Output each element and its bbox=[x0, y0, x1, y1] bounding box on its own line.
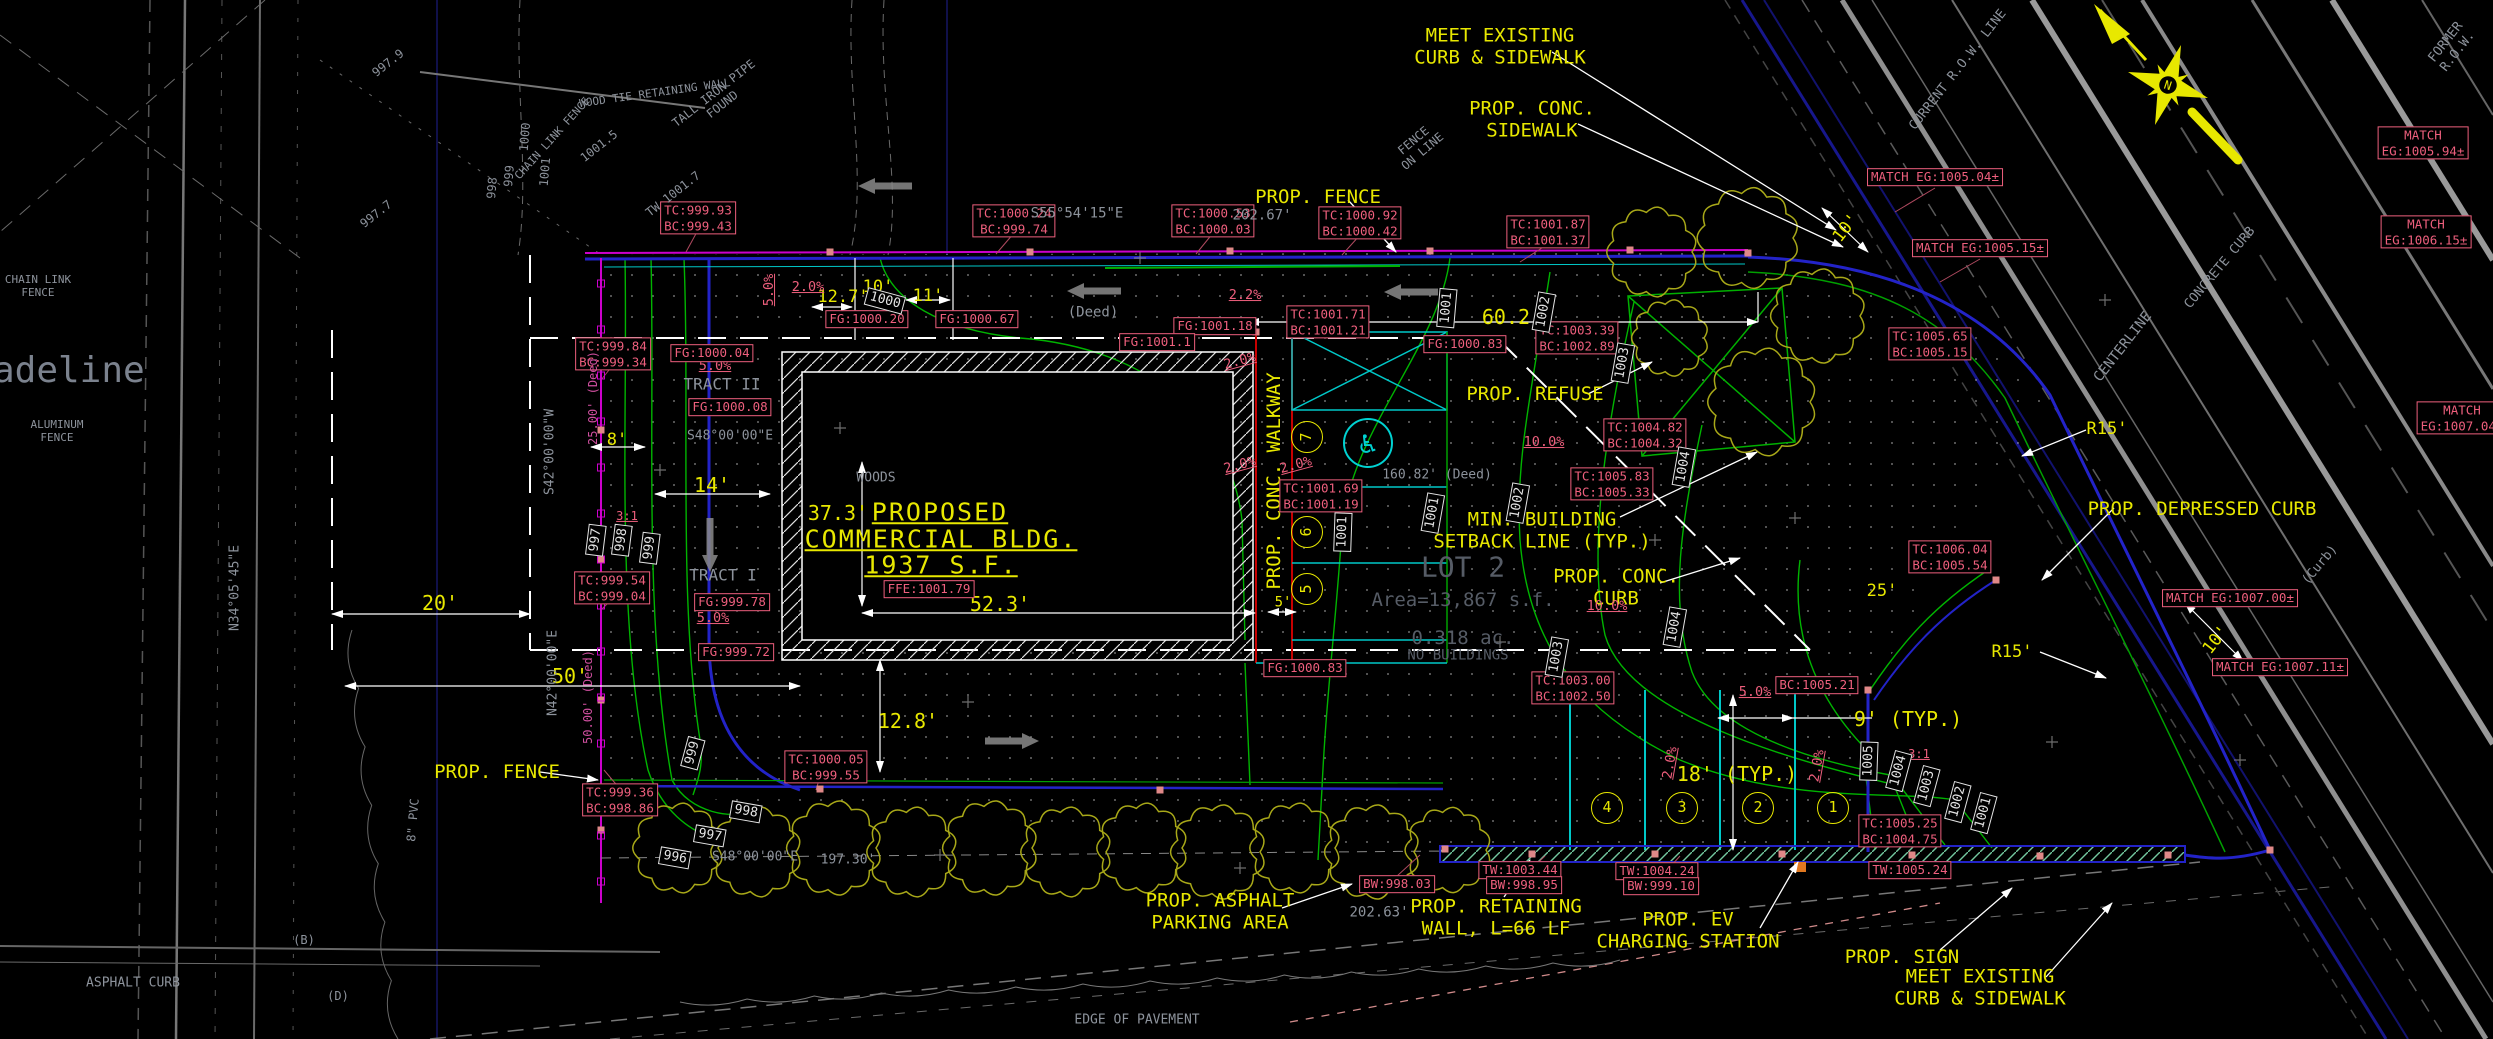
slope-label: 2.0% bbox=[1807, 749, 1828, 784]
elevation-box: FG:1001.1 bbox=[1119, 333, 1195, 351]
elevation-box: MATCH EG:1005.15± bbox=[1912, 239, 2048, 257]
callout-label: PROP. REFUSE bbox=[1466, 383, 1603, 405]
contour-label: 1003 bbox=[1611, 342, 1636, 384]
contour-label: 1001 bbox=[1421, 492, 1446, 534]
dimension-label: 9' (TYP.) bbox=[1854, 708, 1962, 732]
dimension-label: 20' bbox=[422, 592, 458, 616]
survey-note: (D) bbox=[327, 989, 349, 1003]
elevation-box: BW:999.10 bbox=[1623, 877, 1699, 895]
callout-label: MEET EXISTING CURB & SIDEWALK bbox=[1414, 25, 1586, 70]
survey-note: 1001.5 bbox=[578, 127, 621, 165]
callout-label: PROP. CONC. WALKWAY bbox=[1263, 372, 1285, 589]
callout-label: PROP. CONC. SIDEWALK bbox=[1469, 98, 1595, 143]
dimension-label: 10' bbox=[1829, 210, 1864, 247]
survey-note: CHAIN LINK FENCE bbox=[5, 274, 71, 300]
slope-label: 10.0% bbox=[1587, 599, 1628, 615]
dimension-label: 14' bbox=[694, 474, 730, 498]
elevation-box: BW:998.03 bbox=[1359, 875, 1435, 893]
elevation-box: TC:999.93 BC:999.43 bbox=[660, 201, 736, 234]
survey-note: 202.63' bbox=[1349, 905, 1408, 922]
dimension-label: 50' bbox=[552, 665, 588, 689]
survey-note: TRACT I bbox=[689, 567, 756, 586]
elevation-box: FG:1000.83 bbox=[1423, 335, 1506, 353]
elevation-box: TC:1000.53 BC:1000.03 bbox=[1171, 204, 1254, 237]
survey-note: FORMER R.O.W. bbox=[2425, 19, 2478, 75]
dimension-label: 12.8' bbox=[878, 710, 938, 734]
elevation-box: TC:999.84 BC:999.34 bbox=[575, 337, 651, 370]
elevation-box: FFE:1001.79 bbox=[884, 580, 975, 598]
contour-label: 1005 bbox=[1859, 741, 1879, 781]
elevation-box: TC:999.54 BC:999.04 bbox=[574, 571, 650, 604]
survey-note: CONCRETE CURB bbox=[2181, 224, 2258, 312]
slope-label: 2.0% bbox=[1660, 746, 1681, 781]
contour-label: 999 bbox=[680, 735, 706, 770]
contour-label: 998 bbox=[729, 800, 763, 823]
elevation-box: TC:1003.00 BC:1002.50 bbox=[1531, 671, 1614, 704]
survey-note: CHAIN LINK FENCE bbox=[513, 95, 594, 182]
survey-note: S55°54'15"E bbox=[1031, 206, 1124, 223]
elevation-box: TC:1001.87 BC:1001.37 bbox=[1506, 215, 1589, 248]
slope-label: 5.0% bbox=[699, 359, 732, 375]
elevation-box: TC:1006.04 BC:1005.54 bbox=[1908, 540, 1991, 573]
elevation-box: TC:1003.39 BC:1002.89 bbox=[1535, 321, 1618, 354]
parking-space-number: 3 bbox=[1666, 792, 1698, 824]
slope-label: 2.2% bbox=[1229, 288, 1262, 304]
slope-label: 5.0% bbox=[762, 274, 778, 307]
parking-space-number: 2 bbox=[1742, 792, 1774, 824]
slope-label: 3:1 bbox=[616, 509, 638, 523]
elevation-box: MATCH EG:1005.94± bbox=[2378, 126, 2469, 159]
survey-note: 160.82' (Deed) bbox=[1382, 467, 1492, 482]
survey-note: (Curb) bbox=[2299, 542, 2341, 588]
elevation-box: TC:1005.25 BC:1004.75 bbox=[1858, 814, 1941, 847]
elevation-box: FG:1001.18 bbox=[1173, 317, 1256, 335]
annotation-layer: MEET EXISTING CURB & SIDEWALKPROP. CONC.… bbox=[0, 0, 2493, 1039]
slope-label: 5.0% bbox=[1739, 685, 1772, 701]
dimension-label: 8' bbox=[607, 430, 627, 450]
contour-label: 1002 bbox=[1506, 482, 1531, 524]
survey-note: 197.30' bbox=[821, 852, 876, 867]
callout-label: MEET EXISTING CURB & SIDEWALK bbox=[1894, 966, 2066, 1011]
slope-label: 2.0% bbox=[1222, 350, 1258, 374]
elevation-box: TW:1003.44 bbox=[1478, 861, 1561, 879]
survey-note: 25.00' (Deed) bbox=[586, 351, 600, 445]
elevation-box: TC:1001.69 BC:1001.19 bbox=[1279, 479, 1362, 512]
contour-label: 1001 bbox=[1333, 512, 1353, 552]
survey-note: 50.00' (Deed) bbox=[581, 650, 595, 744]
elevation-box: TC:1005.65 BC:1005.15 bbox=[1888, 327, 1971, 360]
parking-space-number: 4 bbox=[1591, 792, 1623, 824]
survey-note: TRACT II bbox=[683, 376, 760, 395]
elevation-box: TC:1000.92 BC:1000.42 bbox=[1318, 206, 1401, 239]
survey-note: S48°00'00"E bbox=[712, 849, 798, 864]
callout-label: MIN. BUILDING SETBACK LINE (TYP.) bbox=[1433, 509, 1650, 554]
slope-label: 10.0% bbox=[1524, 435, 1565, 451]
callout-label: PROP. SIGN bbox=[1845, 946, 1959, 968]
dimension-label: 60.2' bbox=[1482, 306, 1542, 330]
elevation-box: BW:998.95 bbox=[1486, 876, 1562, 894]
dimension-label: R15' bbox=[1992, 642, 2033, 662]
parking-space-number: 1 bbox=[1817, 792, 1849, 824]
dimension-label: 10' bbox=[2199, 622, 2234, 659]
slope-label: 3:1 bbox=[1908, 747, 1930, 761]
survey-note: 202.67' bbox=[1232, 208, 1291, 225]
contour-label: 1004 bbox=[1885, 750, 1913, 793]
survey-note: CENTERLINE bbox=[2091, 309, 2156, 386]
contour-label: 999 bbox=[639, 531, 661, 564]
elevation-box: MATCH EG:1007.04± bbox=[2417, 401, 2493, 434]
elevation-box: MATCH EG:1007.00± bbox=[2162, 589, 2298, 607]
elevation-box: TC:1000.05 BC:999.55 bbox=[784, 750, 867, 783]
slope-label: 5.0% bbox=[697, 611, 730, 627]
dimension-label: 25' bbox=[1867, 581, 1898, 601]
elevation-box: TC:1005.83 BC:1005.33 bbox=[1570, 467, 1653, 500]
survey-note: NO BUILDINGS bbox=[1407, 648, 1508, 665]
callout-label: PROP. ASPHALT PARKING AREA bbox=[1146, 890, 1295, 935]
contour-label: 1001 bbox=[1970, 792, 1998, 835]
accessible-parking-icon: ♿ bbox=[1343, 418, 1393, 468]
contour-label: 996 bbox=[658, 846, 692, 869]
contour-label: 998 bbox=[611, 523, 633, 556]
contour-label: 1002 bbox=[1944, 781, 1972, 824]
survey-note: FENCE ON LINE bbox=[1390, 119, 1447, 173]
callout-label: PROP. RETAINING WALL, L=66 LF bbox=[1410, 896, 1582, 941]
contour-label: 1003 bbox=[1913, 765, 1941, 808]
callout-label: PROP. DEPRESSED CURB bbox=[2088, 498, 2317, 520]
contour-label: 1000 bbox=[864, 287, 907, 315]
building-label: COMMERCIAL BLDG. bbox=[805, 524, 1078, 554]
elevation-box: FG:1000.04 bbox=[670, 344, 753, 362]
elevation-box: FG:1000.83 bbox=[1263, 659, 1346, 677]
survey-note: ASPHALT CURB bbox=[86, 975, 180, 990]
dimension-label: 37.3' bbox=[808, 502, 868, 526]
survey-note: N42°00'00"E bbox=[545, 630, 560, 716]
survey-note: LOT 2 bbox=[1421, 550, 1505, 583]
slope-label: 2.0% bbox=[1222, 454, 1258, 478]
survey-note: 997.9 bbox=[369, 46, 406, 79]
building-label: PROPOSED bbox=[872, 497, 1008, 527]
survey-note: 998 bbox=[484, 177, 500, 200]
dimension-label: 5' bbox=[1275, 595, 1292, 612]
elevation-box: TC:1004.82 BC:1004.32 bbox=[1603, 418, 1686, 451]
survey-note: EDGE OF PAVEMENT bbox=[1074, 1012, 1199, 1027]
survey-note: CURRENT R.O.W. LINE bbox=[1906, 7, 2010, 134]
elevation-box: TW:1004.24 bbox=[1615, 862, 1698, 880]
parking-space-number: 7 bbox=[1291, 421, 1323, 453]
callout-label: PROP. EV CHARGING STATION bbox=[1596, 909, 1779, 954]
elevation-box: FG:1000.20 bbox=[825, 310, 908, 328]
survey-note: madeline bbox=[0, 350, 145, 392]
dimension-label: 11' bbox=[913, 286, 944, 306]
elevation-box: BC:1005.21 bbox=[1775, 676, 1858, 694]
survey-note: 0.318 ac. bbox=[1412, 627, 1515, 649]
elevation-box: TC:1000.24 BC:999.74 bbox=[972, 204, 1055, 237]
elevation-box: TC:1001.71 BC:1001.21 bbox=[1286, 305, 1369, 338]
contour-label: 1002 bbox=[1532, 291, 1557, 333]
elevation-box: FG:999.72 bbox=[698, 643, 774, 661]
survey-note: S42°00'00"W bbox=[542, 409, 557, 495]
site-plan-canvas[interactable]: N MEET EXISTING CURB & SIDEWALKPROP. CON… bbox=[0, 0, 2493, 1039]
survey-note: Area=13,867 s.f. bbox=[1371, 589, 1554, 611]
elevation-box: FG:999.78 bbox=[694, 593, 770, 611]
contour-label: 1003 bbox=[1545, 636, 1570, 678]
survey-note: (Deed) bbox=[1068, 305, 1119, 322]
elevation-box: FG:1000.08 bbox=[688, 398, 771, 416]
contour-label: 1004 bbox=[1672, 446, 1697, 488]
survey-note: TW 1001.7 bbox=[643, 168, 703, 219]
survey-note: 999 bbox=[501, 165, 517, 188]
contour-label: 997 bbox=[693, 824, 727, 847]
survey-note: 1001 bbox=[537, 157, 554, 187]
elevation-box: FG:1000.67 bbox=[935, 310, 1018, 328]
contour-label: 997 bbox=[585, 523, 607, 556]
callout-label: PROP. CONC. CURB bbox=[1553, 566, 1679, 611]
contour-label: 1004 bbox=[1663, 606, 1688, 648]
survey-note: WOOD TIE RETAINING WALL bbox=[579, 77, 732, 111]
parking-space-number: 5 bbox=[1291, 573, 1323, 605]
slope-label: 2.0% bbox=[1278, 454, 1314, 478]
dimension-label: 18' (TYP.) bbox=[1677, 763, 1797, 787]
survey-note: 1000 bbox=[517, 122, 534, 152]
elevation-box: TC:999.36 BC:998.86 bbox=[582, 783, 658, 816]
dimension-label: 10' bbox=[863, 277, 894, 297]
contour-label: 1001 bbox=[1436, 288, 1458, 329]
survey-note: S48°00'00"E bbox=[687, 428, 773, 443]
slope-label: 2.0% bbox=[792, 280, 825, 296]
survey-note: 8" PVC bbox=[404, 798, 422, 842]
elevation-box: TW:1005.24 bbox=[1868, 861, 1951, 879]
callout-label: PROP. FENCE bbox=[434, 761, 560, 783]
dimension-label: R15' bbox=[2087, 419, 2128, 439]
parking-space-number: 6 bbox=[1291, 516, 1323, 548]
survey-note: 997.7 bbox=[357, 197, 394, 230]
survey-note: (B) bbox=[293, 933, 315, 947]
dimension-label: 12.7' bbox=[817, 287, 868, 307]
callout-label: PROP. FENCE bbox=[1255, 186, 1381, 208]
elevation-box: MATCH EG:1006.15± bbox=[2381, 215, 2472, 248]
elevation-box: MATCH EG:1005.04± bbox=[1867, 168, 2003, 186]
survey-note: TALL IRON PIPE FOUND bbox=[669, 57, 766, 142]
survey-note: ALUMINUM FENCE bbox=[31, 419, 84, 445]
building-label: 1937 S.F. bbox=[864, 550, 1017, 580]
survey-note: N34°05'45"E bbox=[227, 545, 242, 631]
elevation-box: MATCH EG:1007.11± bbox=[2212, 658, 2348, 676]
survey-note: WOODS bbox=[856, 470, 895, 485]
dimension-label: 52.3' bbox=[970, 593, 1030, 617]
